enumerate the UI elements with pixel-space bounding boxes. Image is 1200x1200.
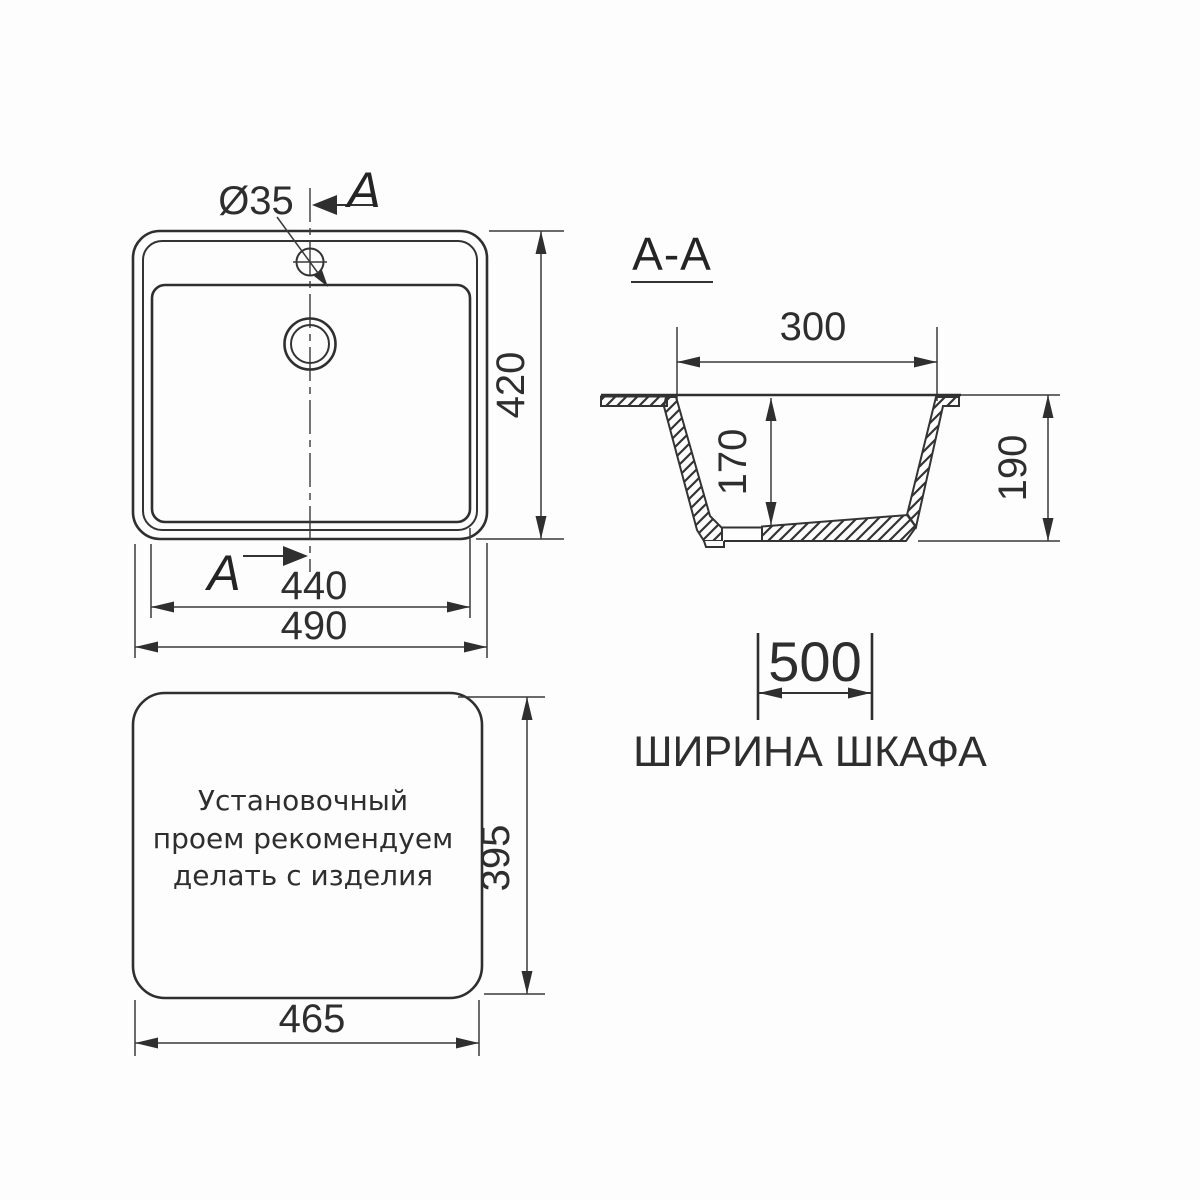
- bottom-wall: [762, 515, 916, 541]
- dim-500-label: 500: [768, 630, 861, 693]
- dim-190-label: 190: [991, 435, 1035, 502]
- sink-bowl-outline: [152, 285, 470, 522]
- section-letter-bottom: A: [204, 545, 240, 601]
- right-wall: [907, 397, 959, 527]
- dim-440-label: 440: [281, 564, 348, 608]
- section-body: [601, 395, 961, 547]
- dimension-300: 300: [677, 305, 937, 401]
- section-arrow-bottom-head: [283, 546, 308, 566]
- sink-outer-outline: [133, 231, 487, 539]
- drain-collar: [704, 541, 724, 547]
- drawing-canvas: Ø35 A A 420 440: [0, 0, 1200, 1200]
- section-arrow-top-head: [312, 195, 337, 215]
- dimension-170: 170: [711, 398, 777, 525]
- dimension-420: 420: [476, 231, 564, 539]
- cutout-note-line1: Установочный: [198, 784, 408, 817]
- cabinet-width-caption: ШИРИНА ШКАФА: [633, 728, 987, 776]
- dimension-465: 465: [135, 997, 479, 1056]
- dim-420-label: 420: [489, 352, 533, 419]
- section-view: A-A 300: [601, 228, 1060, 547]
- dim-170-label: 170: [711, 429, 755, 496]
- hole-diameter-label: Ø35: [218, 179, 294, 223]
- cutout-note-line3: делать с изделия: [173, 859, 433, 892]
- cutout-view: Установочный проем рекомендуем делать с …: [133, 693, 545, 1056]
- cutout-note-line2: проем рекомендуем: [153, 822, 453, 855]
- dim-490-label: 490: [281, 604, 348, 648]
- sink-technical-drawing: Ø35 A A 420 440: [0, 0, 1200, 1200]
- dim-395-label: 395: [474, 825, 518, 892]
- section-letter-top: A: [344, 162, 380, 218]
- dimension-395: 395: [458, 697, 545, 994]
- dim-465-label: 465: [279, 997, 346, 1041]
- cabinet-width-note: 500 ШИРИНА ШКАФА: [633, 630, 987, 776]
- left-flange: [601, 397, 667, 407]
- section-title: A-A: [632, 228, 712, 280]
- dim-300-label: 300: [780, 305, 847, 349]
- plan-view: Ø35 A A 420 440: [133, 162, 564, 658]
